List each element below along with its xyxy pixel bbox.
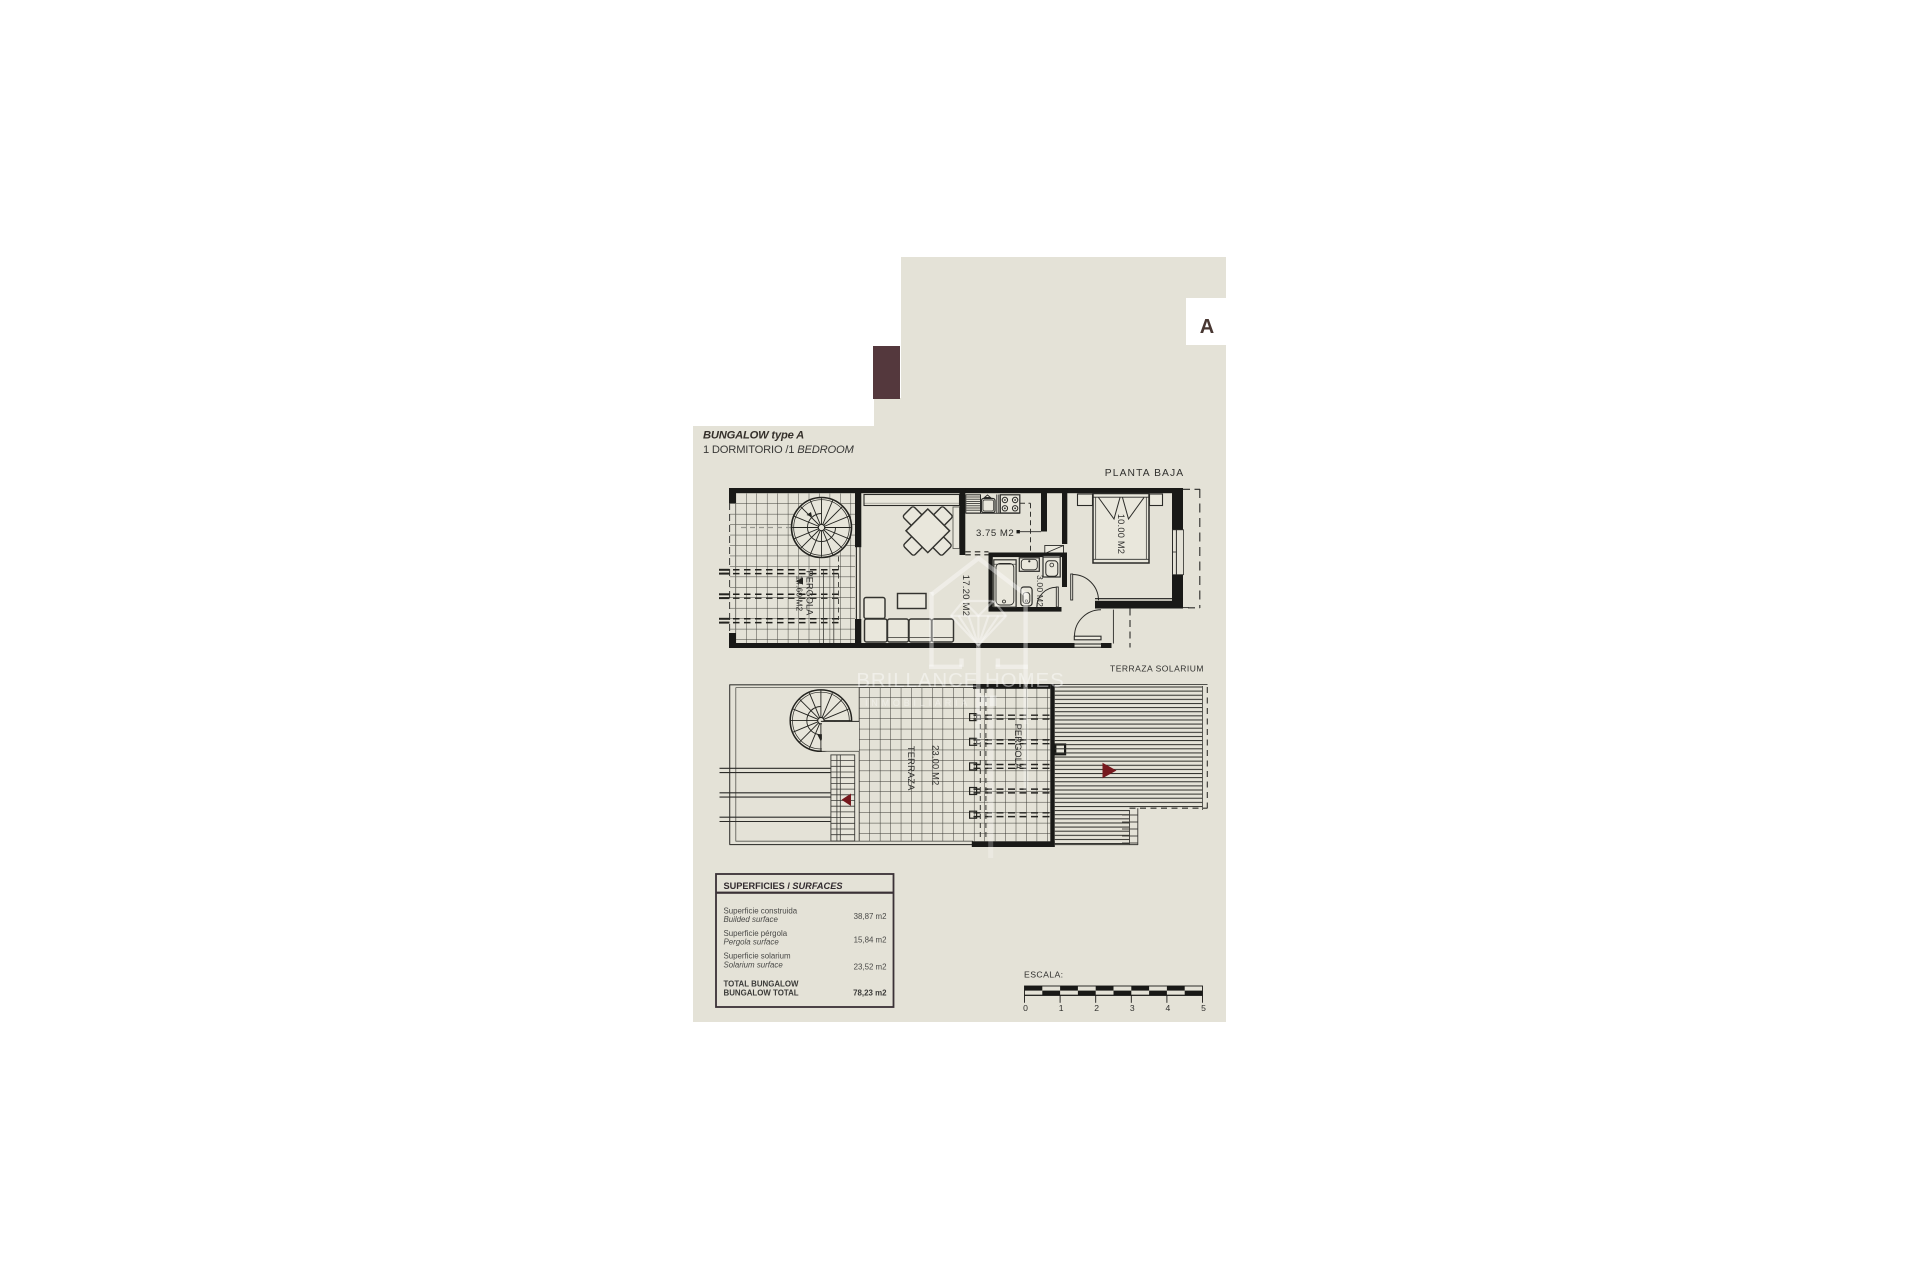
svg-text:23,52 m2: 23,52 m2: [854, 963, 887, 972]
svg-text:TERRAZA: TERRAZA: [906, 746, 916, 791]
svg-text:5: 5: [1201, 1003, 1206, 1013]
svg-text:Superficie solarium: Superficie solarium: [724, 952, 792, 961]
svg-text:PERGOLA: PERGOLA: [1013, 724, 1023, 770]
svg-text:1 DORMITORIO /1 BEDROOM: 1 DORMITORIO /1 BEDROOM: [703, 444, 854, 456]
svg-text:BUNGALOW TOTAL: BUNGALOW TOTAL: [724, 989, 799, 998]
svg-text:TERRAZA SOLARIUM: TERRAZA SOLARIUM: [1110, 664, 1204, 674]
svg-text:PLANTA BAJA: PLANTA BAJA: [1105, 468, 1184, 479]
svg-text:3.75 M2: 3.75 M2: [976, 528, 1014, 539]
svg-text:SUPERFICIES / SURFACES: SUPERFICIES / SURFACES: [724, 881, 844, 891]
svg-text:4: 4: [1166, 1003, 1171, 1013]
svg-text:23.00 M2: 23.00 M2: [930, 745, 940, 785]
svg-text:10.00 M2: 10.00 M2: [1116, 514, 1126, 554]
svg-text:PERGOLA: PERGOLA: [804, 571, 814, 616]
svg-text:38,87 m2: 38,87 m2: [854, 912, 887, 921]
svg-text:TOTAL BUNGALOW: TOTAL BUNGALOW: [724, 980, 800, 989]
svg-text:2: 2: [1094, 1003, 1099, 1013]
svg-text:BRILLANCE HOMES: BRILLANCE HOMES: [856, 669, 1064, 692]
svg-text:17.20 M2: 17.20 M2: [960, 575, 971, 617]
svg-text:0: 0: [1023, 1003, 1028, 1013]
svg-text:1: 1: [1059, 1003, 1064, 1013]
svg-text:INMOBILIARIA: INMOBILIARIA: [865, 698, 971, 708]
svg-text:A: A: [1200, 316, 1214, 338]
svg-text:BUNGALOW type A: BUNGALOW type A: [703, 430, 804, 442]
svg-text:Pergola surface: Pergola surface: [724, 938, 780, 947]
svg-text:78,23 m2: 78,23 m2: [853, 989, 887, 998]
svg-text:15,84 m2: 15,84 m2: [854, 936, 887, 945]
svg-text:3.00 M2: 3.00 M2: [1035, 575, 1045, 607]
svg-text:Builded surface: Builded surface: [724, 915, 779, 924]
svg-text:14.60 M2: 14.60 M2: [795, 576, 804, 612]
svg-text:3: 3: [1130, 1003, 1135, 1013]
svg-text:Solarium surface: Solarium surface: [724, 961, 784, 970]
svg-text:ESCALA:: ESCALA:: [1024, 970, 1064, 980]
